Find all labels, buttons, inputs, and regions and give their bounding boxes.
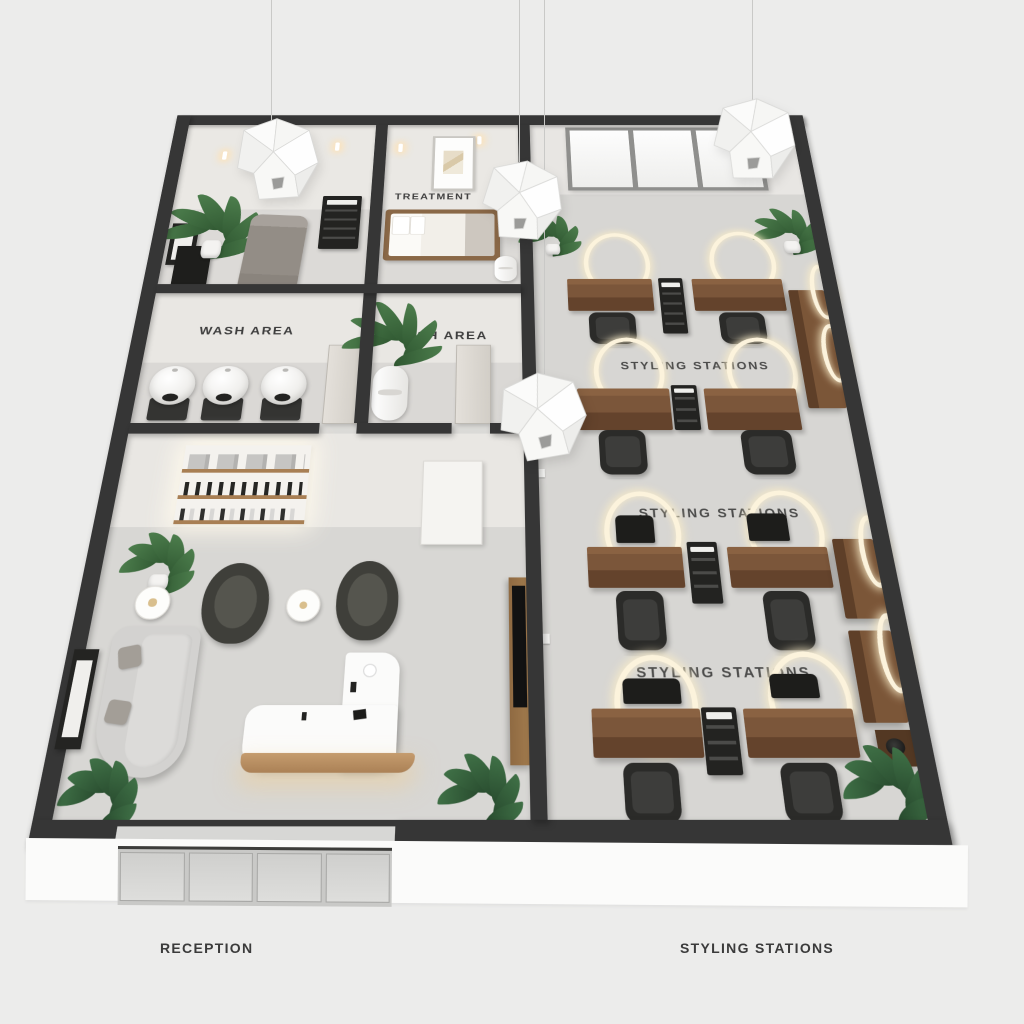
shelf — [173, 520, 304, 524]
shelf — [177, 495, 306, 499]
styling-chair — [779, 763, 845, 824]
lounge-armchair — [333, 561, 400, 640]
entry-glass-door — [118, 846, 392, 907]
caption-reception: RECEPTION — [160, 940, 253, 956]
plant-pot — [783, 241, 801, 253]
framed-artwork — [431, 136, 475, 190]
lounge-armchair — [196, 563, 273, 644]
pendant-cord — [519, 0, 520, 162]
potted-palm — [452, 753, 516, 824]
glass-panel — [257, 853, 322, 902]
geodesic-pendant-light — [481, 364, 602, 467]
glass-panel — [325, 853, 390, 902]
styling-chair — [762, 591, 818, 650]
glass-panel — [120, 852, 185, 901]
wash-area-label: WASH AREA — [189, 324, 306, 337]
retail-products — [187, 454, 305, 469]
sofa-pillow — [103, 699, 133, 726]
pendant-cord — [752, 0, 753, 100]
wall-sconce-icon — [222, 151, 228, 159]
shelf — [182, 469, 310, 473]
desk-bottle — [301, 712, 306, 720]
caption-styling-stations: STYLING STATIONS — [680, 940, 834, 956]
reception-desk-base — [239, 753, 415, 773]
styling-desk — [567, 279, 655, 311]
geodesic-pendant-light — [703, 93, 805, 185]
styling-desk — [591, 709, 704, 758]
geodesic-pendant-light — [473, 152, 572, 247]
wall-horizontal-lower-b — [356, 423, 451, 434]
desk-tablet — [353, 709, 367, 720]
styling-chair — [598, 430, 648, 474]
tucked-chair-back — [615, 515, 655, 543]
potted-palm — [59, 758, 146, 824]
wall-horizontal-upper — [156, 284, 521, 293]
potted-plant — [130, 525, 193, 590]
styling-desk — [691, 279, 787, 311]
tucked-chair-back — [768, 674, 820, 698]
retail-products — [183, 482, 303, 495]
glass-panel — [188, 852, 253, 901]
retail-products — [179, 509, 300, 521]
side-table — [132, 586, 173, 620]
styling-chair — [623, 763, 683, 824]
styling-desk — [704, 389, 803, 431]
backwash-basin — [146, 366, 198, 405]
service-trolley — [318, 196, 362, 249]
styling-trolley — [701, 707, 744, 775]
bed-pillow — [392, 216, 411, 234]
sofa — [87, 626, 202, 778]
wall-sconce-icon — [335, 142, 340, 150]
room-reception — [52, 434, 530, 820]
retail-shelving — [173, 445, 311, 524]
tucked-chair-back — [622, 678, 682, 703]
styling-trolley — [658, 278, 688, 333]
potted-plant — [372, 293, 420, 369]
window-pane — [570, 131, 633, 188]
desk-bottle — [350, 682, 356, 692]
light-switch — [539, 469, 545, 477]
wall-horizontal-lower-a — [128, 423, 319, 434]
light-switch — [543, 634, 550, 644]
salon-floor-plan-scene: TREATMENT WASH AREA WASH AREA — [0, 0, 1024, 1024]
tucked-chair-back — [746, 513, 790, 540]
towel-cabinet — [370, 366, 409, 420]
side-table — [284, 589, 321, 622]
window-pane — [633, 131, 699, 188]
wall-sconce-icon — [398, 144, 403, 152]
bed-pillow — [410, 216, 426, 234]
display-screen — [512, 586, 527, 708]
open-door-leaf — [420, 461, 483, 545]
styling-chair — [615, 591, 667, 650]
styling-desk — [587, 547, 686, 588]
side-stool — [495, 256, 517, 281]
room-wash-area-left: WASH AREA — [130, 293, 363, 423]
styling-trolley — [671, 385, 702, 430]
styling-desk — [727, 547, 834, 588]
wall-sconce-icon — [477, 136, 481, 144]
styling-trolley — [686, 542, 723, 604]
styling-chair — [740, 430, 798, 474]
sofa-pillow — [118, 644, 142, 671]
styling-desk — [743, 709, 861, 758]
geodesic-pendant-light — [232, 116, 322, 202]
pendant-cord — [271, 0, 272, 120]
